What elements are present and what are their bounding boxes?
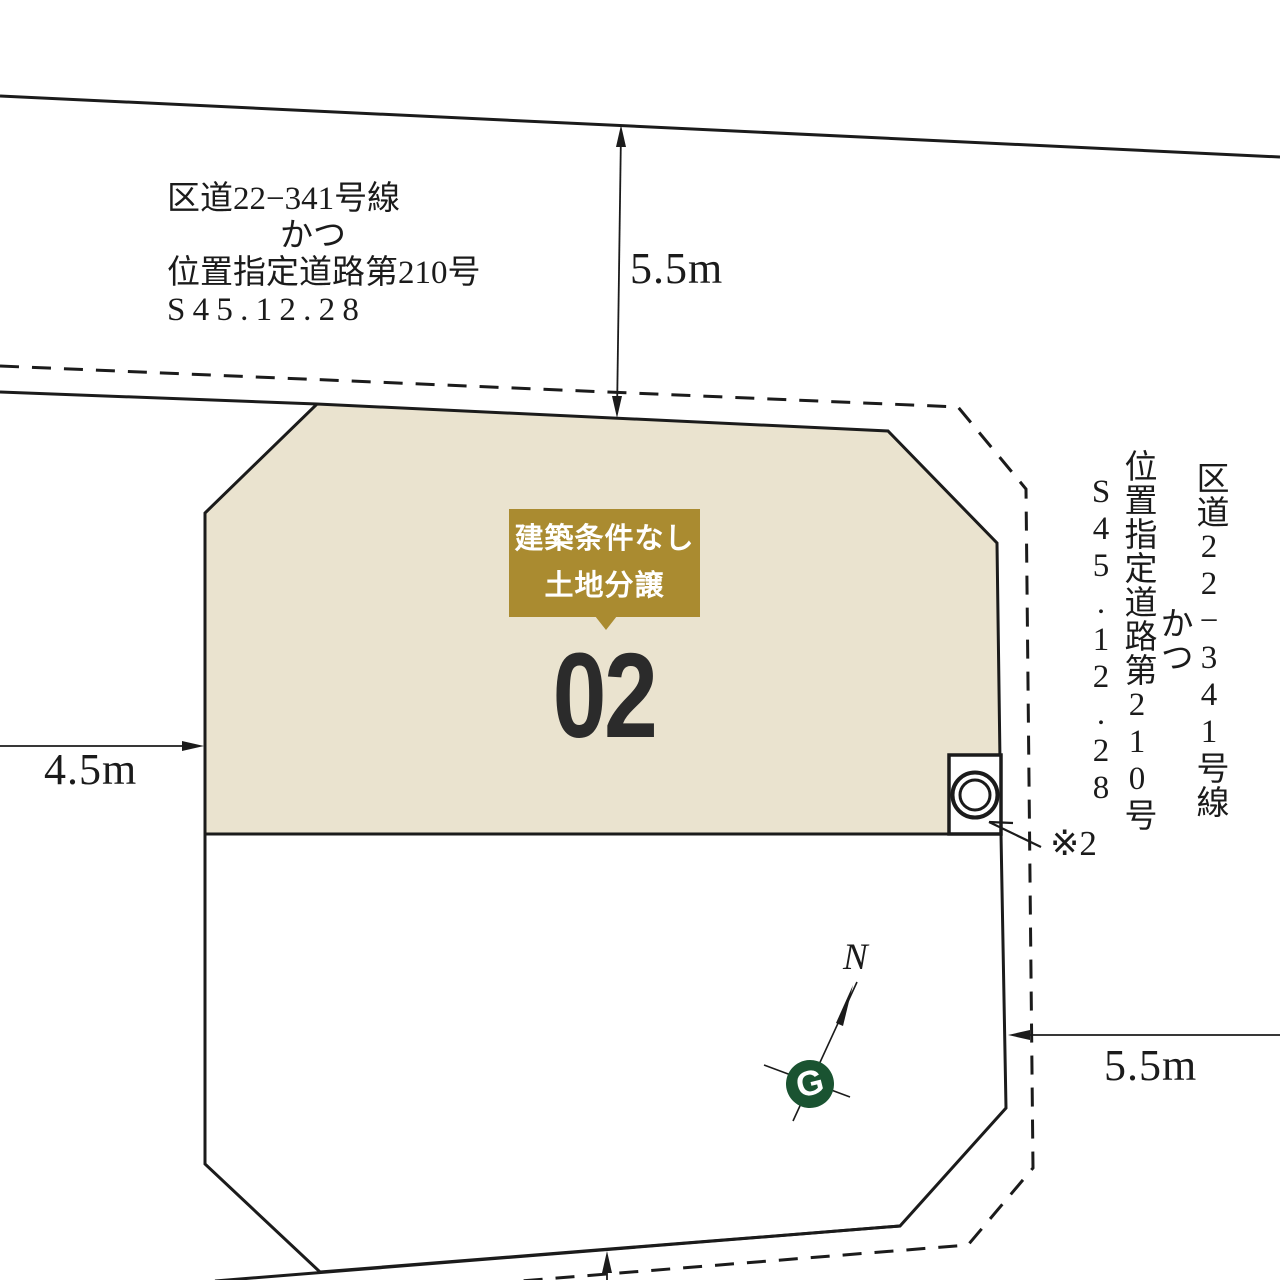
dimension-label-left: 4.5m	[44, 744, 137, 795]
g-logo-letter: G	[792, 1061, 828, 1106]
left-boundary-line	[0, 392, 317, 404]
note-label: ※2	[1050, 824, 1097, 864]
sale-badge: 建築条件なし 土地分譲	[509, 509, 700, 617]
dimension-arrow-right	[1008, 1030, 1280, 1040]
sale-badge-line1: 建築条件なし	[509, 516, 700, 563]
dimension-arrow-top	[612, 125, 626, 418]
top-road-edge-line	[0, 96, 1280, 157]
dimension-label-top: 5.5m	[630, 243, 723, 294]
road-label-right-line2: かつ	[1155, 448, 1191, 832]
road-label-top-line3: 位置指定道路第210号	[167, 255, 459, 292]
road-label-top-line4: S45.12.28	[167, 292, 459, 329]
sale-badge-line2: 土地分譲	[509, 563, 700, 610]
lower-parcel-polygon	[205, 834, 1006, 1272]
road-label-right-line4: S45.12.28	[1083, 448, 1119, 832]
road-label-right-line1: 区道22−341号線	[1191, 448, 1227, 832]
road-label-top-line1: 区道22−341号線	[167, 181, 459, 218]
road-label-right: 区道22−341号線 かつ 位置指定道路第210号 S45.12.28	[1083, 448, 1227, 832]
plot-number: 02	[544, 645, 664, 745]
road-label-right-line3: 位置指定道路第210号	[1119, 448, 1155, 832]
road-label-top-line2: かつ	[167, 218, 459, 255]
dimension-label-right: 5.5m	[1104, 1040, 1197, 1091]
north-label: N	[843, 936, 868, 979]
plot-diagram: 区道22−341号線 かつ 位置指定道路第210号 S45.12.28 区道22…	[0, 0, 1280, 1280]
road-label-top: 区道22−341号線 かつ 位置指定道路第210号 S45.12.28	[167, 181, 459, 329]
